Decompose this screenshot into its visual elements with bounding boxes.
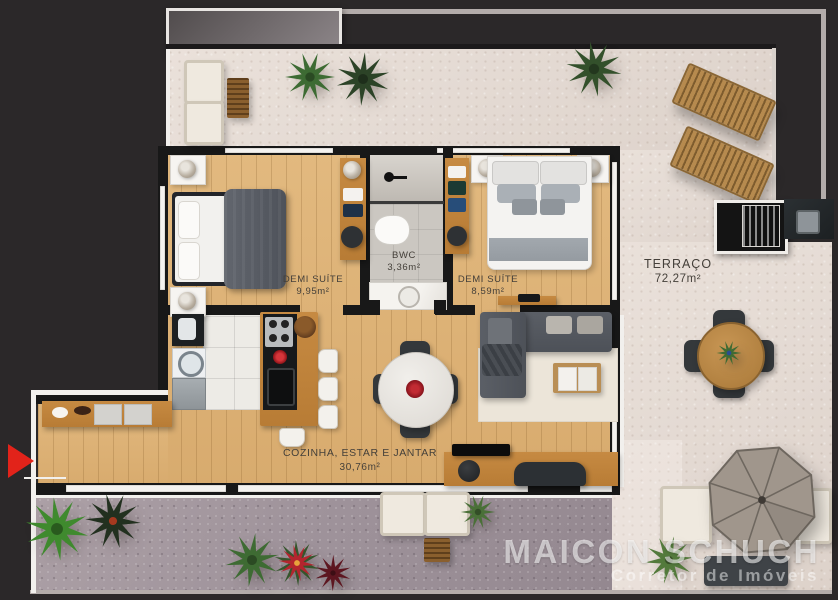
- room-area: 72,27m²: [644, 272, 712, 287]
- desk-chair: [341, 226, 363, 248]
- entrance-arrow: [8, 444, 34, 478]
- room-area: 9,95m²: [283, 286, 343, 298]
- scale-mark: [24, 477, 66, 479]
- coffee-table-books: [578, 367, 597, 391]
- kitchen-sink-basin: [178, 318, 196, 340]
- wardrobe-box-blue: [448, 198, 466, 212]
- wall-bottom-outline: [36, 495, 612, 498]
- bar-stool: [279, 428, 305, 447]
- sideboard-tray: [94, 404, 122, 425]
- extension-outline-left: [31, 390, 36, 593]
- terrace-top-edge: [166, 44, 776, 49]
- room-label-demi-suite-2: DEMI SUÍTE 8,59m²: [458, 274, 518, 299]
- sofa-pillow: [577, 316, 603, 334]
- wardrobe-box-white: [343, 188, 363, 201]
- shower-floor: [370, 155, 444, 203]
- island-sink: [267, 368, 295, 406]
- flower-pot-red: [273, 350, 287, 364]
- barbecue-sink: [796, 210, 820, 234]
- sliding-door-bottom: [238, 485, 528, 492]
- shower-glass: [370, 201, 444, 204]
- window-bottom-living: [580, 485, 612, 492]
- washer-door: [178, 351, 204, 377]
- wall-left-living: [158, 315, 168, 400]
- wardrobe-box-white: [448, 166, 466, 178]
- wall-right-outline: [620, 315, 624, 487]
- room-area: 30,76m²: [283, 461, 437, 474]
- wardrobe-box-navy: [343, 204, 363, 217]
- desk-chair: [447, 226, 467, 246]
- burner: [281, 320, 289, 328]
- bed1-duvet: [224, 189, 286, 289]
- fridge: [172, 378, 206, 410]
- speaker: [458, 460, 480, 482]
- garden-seat: [424, 492, 470, 536]
- room-label-cozinha: COZINHA, ESTAR E JANTAR 30,76m²: [283, 447, 437, 474]
- sofa-pillow-dark: [488, 318, 512, 346]
- kitchen-tile-floor: [203, 315, 265, 410]
- wicker-side-table: [227, 78, 249, 118]
- sideboard-dish: [52, 407, 68, 418]
- terrace-armchair: [184, 101, 224, 145]
- terrace-left-edge: [166, 48, 170, 152]
- room-name: BWC: [387, 250, 420, 262]
- bed2-pillow: [492, 161, 539, 185]
- shower-arm: [393, 176, 407, 179]
- outdoor-dining-table: [697, 322, 765, 390]
- sideboard-bowl: [74, 406, 91, 415]
- vanity-basin: [398, 286, 420, 308]
- burner: [281, 334, 289, 342]
- room-label-bwc: BWC 3,36m²: [387, 250, 420, 275]
- bed2-cushion: [512, 199, 537, 215]
- sofa-throw-blanket: [482, 344, 522, 376]
- bottom-edge-line: [30, 590, 832, 594]
- floorplan-canvas: DEMI SUÍTE 9,95m² BWC 3,36m² DEMI SUÍTE …: [0, 0, 838, 600]
- sideboard-tray: [124, 404, 152, 425]
- bar-stool: [318, 349, 338, 373]
- toilet: [374, 215, 410, 245]
- room-label-demi-suite-1: DEMI SUÍTE 9,95m²: [283, 274, 343, 299]
- room-name: DEMI SUÍTE: [283, 274, 343, 286]
- dining-centerpiece-flowers: [406, 380, 424, 398]
- terrace-armchair: [184, 60, 224, 104]
- barbecue-grate: [742, 205, 780, 247]
- bed1-pillow: [178, 201, 200, 239]
- bar-stool: [318, 405, 338, 429]
- lamp: [178, 160, 196, 178]
- room-label-terraco: TERRAÇO 72,27m²: [644, 256, 712, 287]
- tv: [452, 444, 510, 456]
- bed2-blanket: [489, 238, 588, 261]
- console-chair: [514, 462, 586, 486]
- bed2-pillow: [540, 161, 587, 185]
- room-area: 8,59m²: [458, 286, 518, 298]
- roof-edge-top-line: [336, 9, 826, 14]
- window-bottom-kitchen: [66, 485, 226, 492]
- roof-edge-right-line: [821, 9, 826, 203]
- room-area: 3,36m²: [387, 262, 420, 274]
- watermark-subtitle: Corretor de Imóveis: [611, 566, 819, 586]
- bed1-pillow: [178, 242, 200, 280]
- wardrobe-basket: [343, 161, 361, 179]
- lamp: [178, 292, 196, 310]
- sofa-pillow: [546, 316, 572, 334]
- room-name: TERRAÇO: [644, 256, 712, 272]
- bench-tray: [518, 294, 540, 302]
- wall-stub-bwc-right: [434, 300, 446, 314]
- wall-stub-bwc-left: [368, 300, 380, 314]
- room-name: COZINHA, ESTAR E JANTAR: [283, 447, 437, 461]
- window-bedroom1-top: [225, 148, 333, 153]
- window-bedroom1-left: [160, 186, 165, 290]
- coffee-table-books: [558, 367, 577, 391]
- fruit-bowl: [294, 316, 316, 338]
- wicker-table: [424, 538, 450, 562]
- wardrobe-box-green: [448, 181, 466, 195]
- burner: [269, 320, 277, 328]
- door-bedroom2-terrace: [612, 162, 617, 300]
- bed2-cushion: [540, 199, 565, 215]
- extension-outline-top: [31, 390, 168, 395]
- room-name: DEMI SUÍTE: [458, 274, 518, 286]
- burner: [269, 334, 277, 342]
- garden-seat: [380, 492, 426, 536]
- window-bedroom2-top: [437, 148, 570, 153]
- bar-stool: [318, 377, 338, 401]
